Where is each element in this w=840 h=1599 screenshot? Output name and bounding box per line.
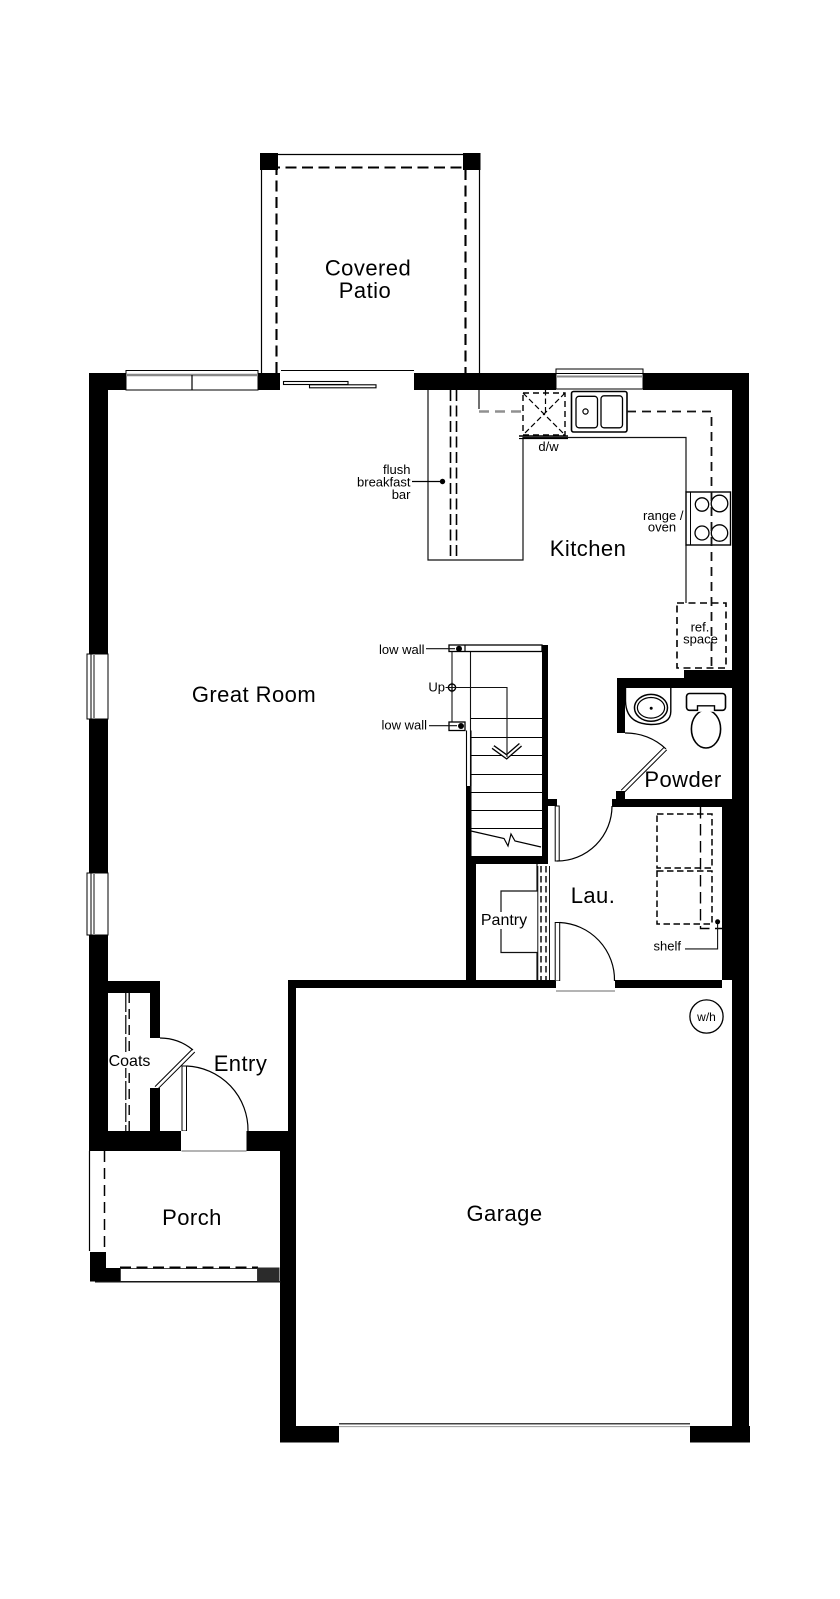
svg-text:Entry: Entry — [214, 1051, 268, 1076]
svg-text:oven: oven — [648, 520, 676, 535]
svg-text:Up: Up — [428, 680, 445, 695]
svg-text:Powder: Powder — [644, 767, 721, 792]
svg-text:low wall: low wall — [381, 718, 427, 733]
svg-text:low wall: low wall — [379, 642, 425, 657]
svg-text:Coats: Coats — [109, 1053, 151, 1070]
svg-text:w/h: w/h — [696, 1010, 716, 1024]
svg-text:bar: bar — [392, 487, 411, 502]
svg-text:space: space — [683, 632, 718, 647]
svg-text:Porch: Porch — [162, 1205, 222, 1230]
svg-text:Kitchen: Kitchen — [550, 536, 627, 561]
svg-text:Lau.: Lau. — [571, 883, 616, 908]
svg-text:d/w: d/w — [538, 439, 559, 454]
svg-text:Covered: Covered — [325, 256, 411, 281]
svg-text:Patio: Patio — [339, 278, 391, 303]
svg-text:Garage: Garage — [466, 1201, 542, 1226]
svg-text:shelf: shelf — [654, 939, 682, 954]
svg-text:Pantry: Pantry — [481, 912, 527, 929]
svg-text:Great Room: Great Room — [192, 682, 316, 707]
